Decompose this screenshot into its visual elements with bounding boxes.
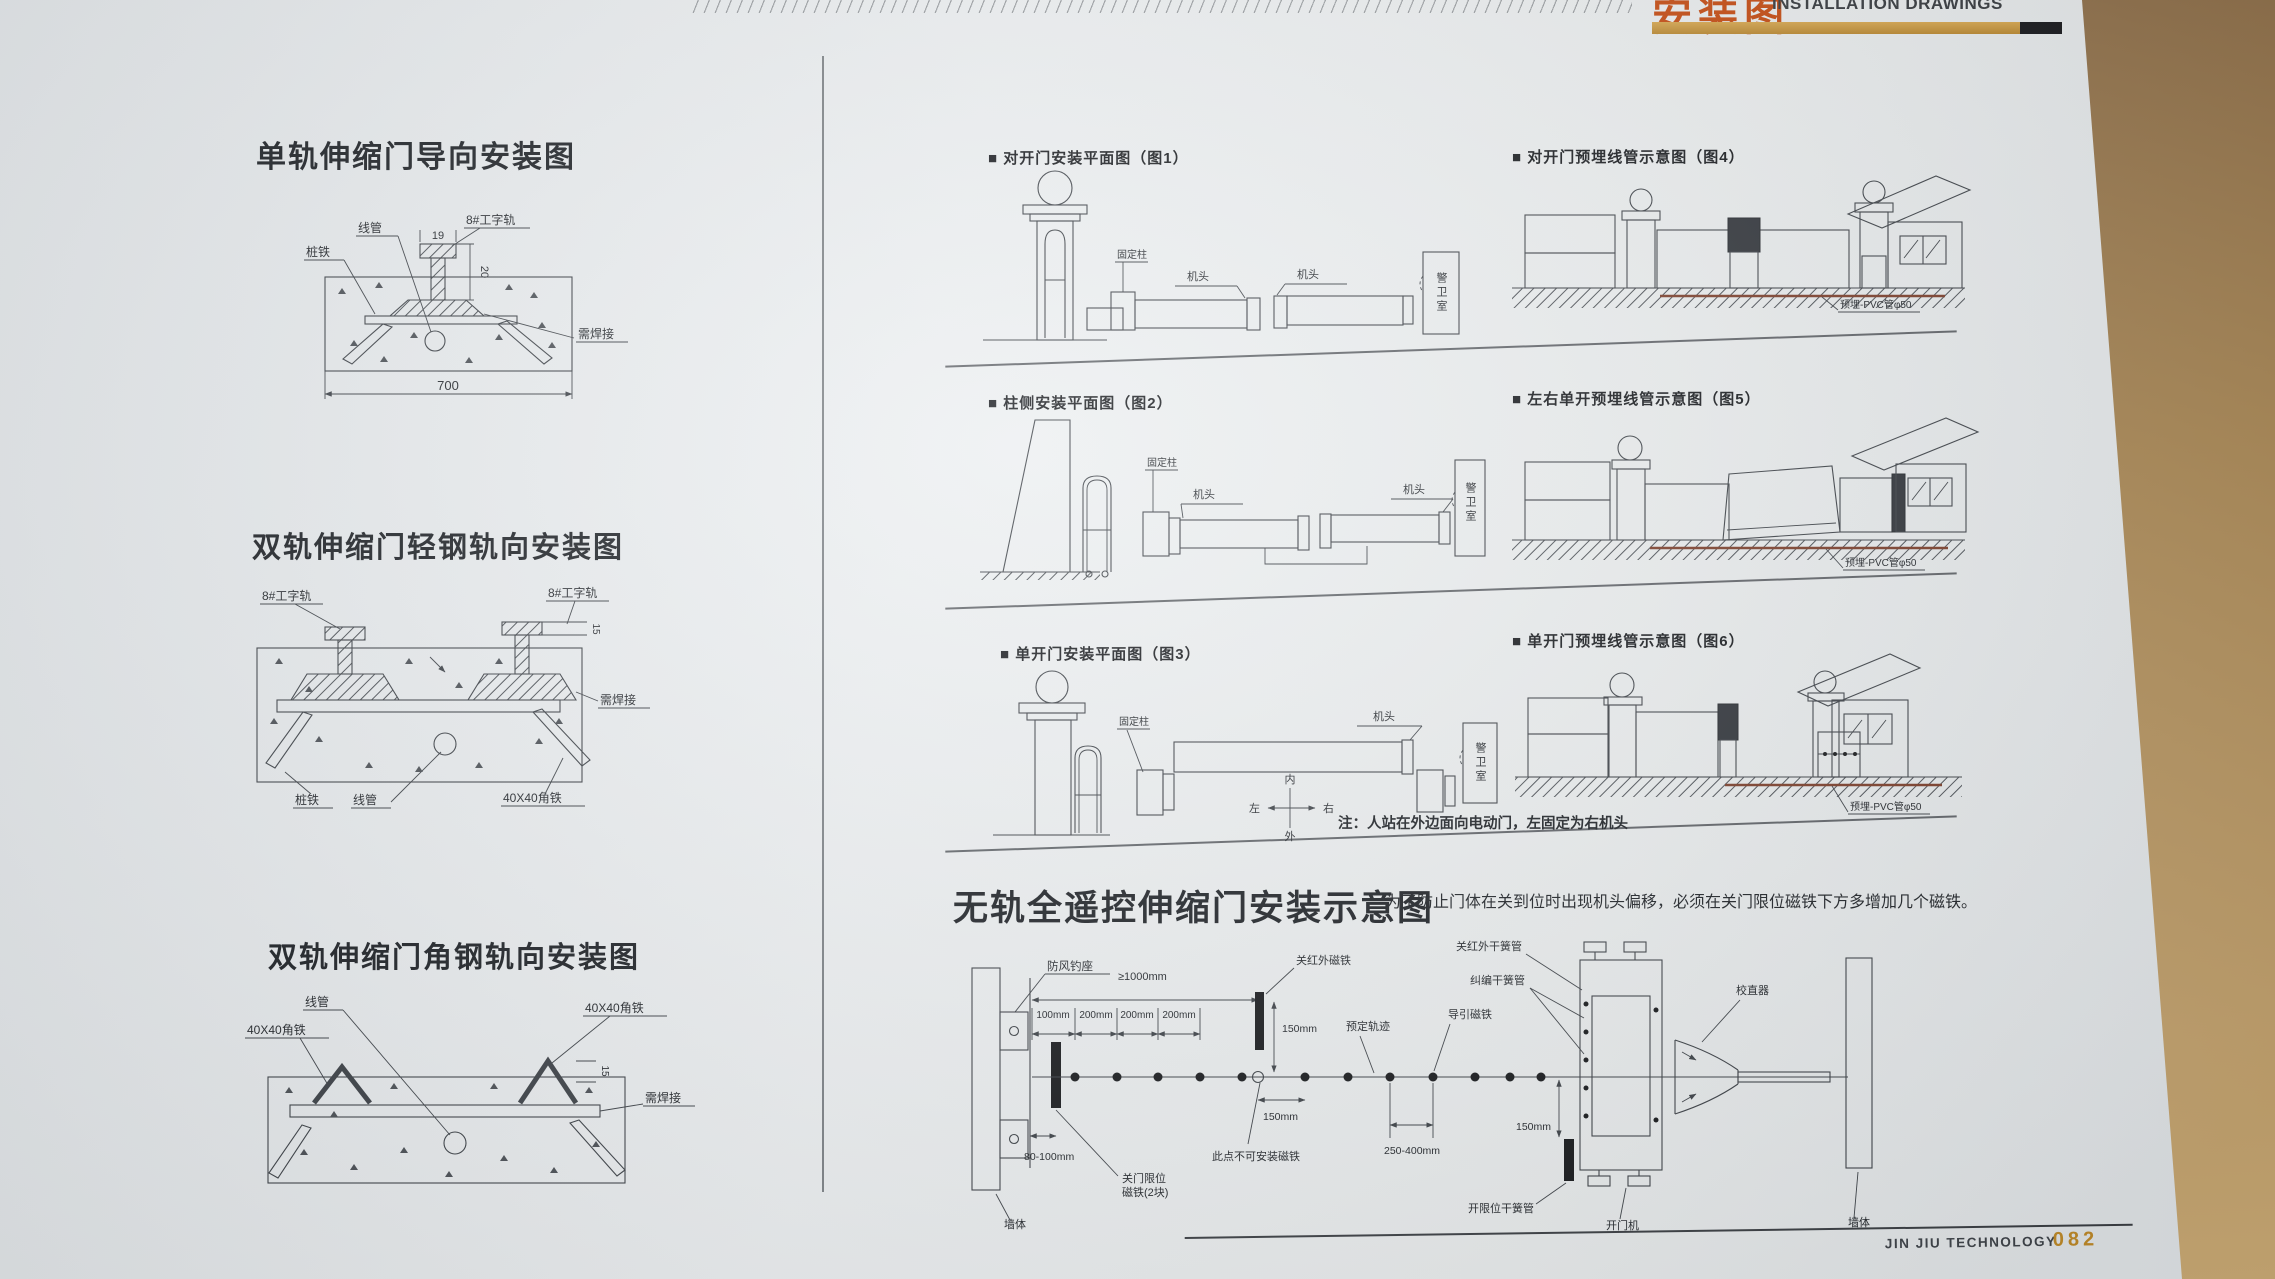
svg-text:关门限位: 关门限位: [1122, 1171, 1166, 1185]
diagram1-single-rail-svg: 线管 桩铁 8#工字轨 19 20 需焊接: [280, 198, 710, 413]
fixed-post: [1137, 770, 1163, 815]
svg-text:预定轨迹: 预定轨迹: [1346, 1019, 1390, 1033]
svg-text:关红外磁铁: 关红外磁铁: [1296, 953, 1351, 967]
svg-text:校直器: 校直器: [1736, 983, 1769, 997]
svg-text:机头: 机头: [1403, 482, 1425, 496]
retractable-gate-left: [1645, 484, 1729, 540]
svg-text:150mm: 150mm: [1516, 1121, 1551, 1133]
svg-text:100mm: 100mm: [1036, 1010, 1069, 1021]
aggregate-marks: [338, 282, 556, 363]
svg-text:机头: 机头: [1373, 709, 1395, 723]
page-header-en: INSTALLATION DRAWINGS: [1772, 0, 2003, 14]
svg-text:需焊接: 需焊接: [645, 1090, 681, 1105]
svg-text:固定柱: 固定柱: [1117, 248, 1147, 261]
svg-text:≥1000mm: ≥1000mm: [1118, 971, 1167, 983]
svg-text:预埋-PVC管φ50: 预埋-PVC管φ50: [1850, 800, 1922, 813]
svg-text:15: 15: [590, 623, 601, 635]
svg-text:200mm: 200mm: [1120, 1010, 1153, 1021]
fence-stub: [1087, 308, 1123, 330]
svg-text:防风钓座: 防风钓座: [1047, 959, 1093, 973]
wall-left: [972, 968, 1000, 1190]
svg-text:预埋-PVC管φ50: 预埋-PVC管φ50: [1840, 298, 1912, 311]
svg-text:外: 外: [1285, 830, 1296, 843]
svg-text:墙体: 墙体: [1004, 1217, 1026, 1231]
column-divider: [822, 56, 824, 1192]
gate-section-left: [1180, 520, 1298, 548]
svg-text:纠编干簧管: 纠编干簧管: [1470, 973, 1525, 987]
ornate-column: [993, 671, 1110, 835]
diagram3-drawing: 线管 40X40角铁 40X40角铁 15 需焊接: [245, 994, 695, 1183]
svg-text:警卫室: 警卫室: [1435, 271, 1448, 314]
fence: [1525, 462, 1610, 500]
svg-text:机头: 机头: [1193, 487, 1215, 501]
diagram1-title: 单轨伸缩门导向安装图: [256, 132, 576, 176]
svg-text:需焊接: 需焊接: [600, 692, 636, 707]
svg-text:固定柱: 固定柱: [1147, 456, 1177, 469]
svg-text:19: 19: [432, 230, 444, 242]
brick-wall: [1528, 734, 1608, 777]
guard-house: [1852, 418, 1978, 532]
open-limit-magnet: [1564, 1139, 1574, 1181]
diagram3-angle-steel-svg: 线管 40X40角铁 40X40角铁 15 需焊接: [240, 985, 745, 1255]
svg-text:250-400mm: 250-400mm: [1384, 1145, 1440, 1157]
diagram1-drawing: 线管 桩铁 8#工字轨 19 20 需焊接: [304, 212, 628, 399]
svg-text:8#工字轨: 8#工字轨: [262, 588, 311, 603]
svg-text:线管: 线管: [353, 792, 377, 807]
svg-text:磁铁(2块): 磁铁(2块): [1122, 1186, 1168, 1199]
desk-background: [2040, 0, 2275, 1279]
svg-text:开限位干簧管: 开限位干簧管: [1468, 1201, 1534, 1215]
orientation-compass: 内 左 右 外: [1249, 772, 1334, 843]
diagram2-drawing: 8#工字轨 8#工字轨 15 需焊接 桩铁 线管 40X40角: [257, 585, 650, 808]
diagram2-title: 双轨伸缩门轻钢轨向安装图: [252, 524, 624, 566]
retractable-gate-right: [1840, 478, 1892, 532]
svg-text:8#工字轨: 8#工字轨: [548, 585, 597, 600]
svg-text:80-100mm: 80-100mm: [1024, 1151, 1074, 1163]
gate-section-right: [1331, 515, 1439, 542]
bottom-note: 为了防止门体在关到位时出现机头偏移，必须在关门限位磁铁下方多增加几个磁铁。: [1385, 888, 1977, 912]
gate-section-right: [1287, 296, 1403, 325]
svg-text:此点不可安装磁铁: 此点不可安装磁铁: [1212, 1149, 1300, 1163]
page-header-cn: 安装图: [1652, 0, 1790, 42]
guard-house: [1798, 654, 1920, 777]
svg-text:左: 左: [1249, 802, 1260, 815]
svg-text:桩铁: 桩铁: [306, 244, 330, 259]
svg-text:8#工字轨: 8#工字轨: [466, 212, 515, 227]
fixed-post: [1143, 512, 1169, 556]
svg-text:线管: 线管: [305, 994, 329, 1009]
diagram3-title: 双轨伸缩门角钢轨向安装图: [268, 934, 640, 976]
gate-column-right: [1808, 671, 1844, 777]
fence: [1525, 215, 1615, 253]
svg-text:固定柱: 固定柱: [1119, 715, 1149, 728]
svg-text:40X40角铁: 40X40角铁: [503, 791, 562, 805]
svg-text:200mm: 200mm: [1079, 1010, 1112, 1021]
catalog-page-photo: 安装图 INSTALLATION DRAWINGS 单轨伸缩门导向安装图 线管 …: [0, 0, 2275, 1279]
svg-text:150mm: 150mm: [1282, 1023, 1317, 1035]
svg-text:150mm: 150mm: [1263, 1111, 1298, 1123]
linkage-bracket: [1265, 546, 1367, 564]
top-hatch-decor: [688, 0, 1632, 13]
gate-machine-post: [1892, 474, 1905, 532]
diagram2-light-steel-svg: 8#工字轨 8#工字轨 15 需焊接 桩铁 线管 40X40角: [245, 572, 730, 817]
gate-section-left: [1135, 300, 1247, 328]
svg-text:导引磁铁: 导引磁铁: [1448, 1007, 1492, 1021]
retractable-gate-folded: [1636, 712, 1718, 777]
gate-section: [1174, 742, 1402, 772]
gate-leaf: [1075, 746, 1101, 833]
fig1-plan-view-svg: 固定柱 机头 机头 警卫室: [975, 160, 1480, 350]
gate-column-left: [1622, 189, 1660, 288]
svg-text:警卫室: 警卫室: [1474, 741, 1487, 784]
svg-text:线管: 线管: [358, 220, 382, 235]
fig2-plan-view-svg: 固定柱 机头 机头 警卫室: [975, 400, 1485, 595]
fig4-elevation-svg: 预埋-PVC管φ50: [1500, 158, 1980, 348]
gate-column: [1612, 436, 1650, 540]
svg-text:桩铁: 桩铁: [295, 792, 319, 807]
svg-text:20: 20: [478, 266, 490, 278]
wall-right: [1846, 958, 1872, 1168]
tapered-wall: [1003, 420, 1070, 572]
brick-wall: [1525, 500, 1610, 540]
svg-text:机头: 机头: [1187, 269, 1209, 283]
svg-text:机头: 机头: [1297, 267, 1319, 281]
svg-text:700: 700: [437, 378, 459, 393]
svg-text:200mm: 200mm: [1162, 1010, 1195, 1021]
svg-text:15: 15: [599, 1065, 610, 1077]
ground-hatch: [1515, 777, 1962, 797]
close-limit-magnet: [1051, 1042, 1061, 1108]
svg-text:预埋-PVC管φ50: 预埋-PVC管φ50: [1845, 556, 1917, 569]
footer-brand: JIN JIU TECHNOLOGY: [1885, 1234, 2057, 1251]
svg-text:40X40角铁: 40X40角铁: [585, 1001, 644, 1015]
guard-house: [1848, 176, 1970, 288]
header-gold-bar: [1652, 22, 2020, 34]
gate-machine-head: [1728, 218, 1760, 252]
close-infrared-magnet: [1255, 992, 1264, 1050]
connector-box: [1417, 770, 1443, 812]
aggregate-marks: [285, 1083, 600, 1177]
bottom-title: 无轨全遥控伸缩门安装示意图: [953, 880, 1434, 931]
svg-text:右: 右: [1323, 801, 1334, 815]
fig6-elevation-svg: 预埋-PVC管φ50: [1500, 642, 1980, 837]
gate-leaf: [1083, 476, 1111, 577]
footer-page-number: 082: [2053, 1228, 2099, 1252]
ornate-column: [983, 171, 1107, 340]
svg-text:内: 内: [1285, 772, 1296, 786]
svg-text:警卫室: 警卫室: [1464, 481, 1477, 524]
svg-text:需焊接: 需焊接: [578, 326, 614, 341]
svg-text:40X40角铁: 40X40角铁: [247, 1023, 306, 1037]
fence: [1528, 698, 1608, 734]
svg-text:关红外干簧管: 关红外干簧管: [1456, 939, 1522, 953]
fig5-elevation-svg: 预埋-PVC管φ50: [1500, 398, 1980, 598]
ground-hatch: [1512, 540, 1965, 560]
trackless-gate-install-svg: 防风钓座 80-100mm 关门限位 磁铁(2块) 墙体 ≥1000mm 100…: [960, 930, 2020, 1265]
brick-wall: [1525, 253, 1615, 288]
gate-opener-machine: [1580, 942, 1662, 1186]
gate-machine-head: [1718, 704, 1738, 740]
header-black-bar: [2020, 22, 2062, 34]
